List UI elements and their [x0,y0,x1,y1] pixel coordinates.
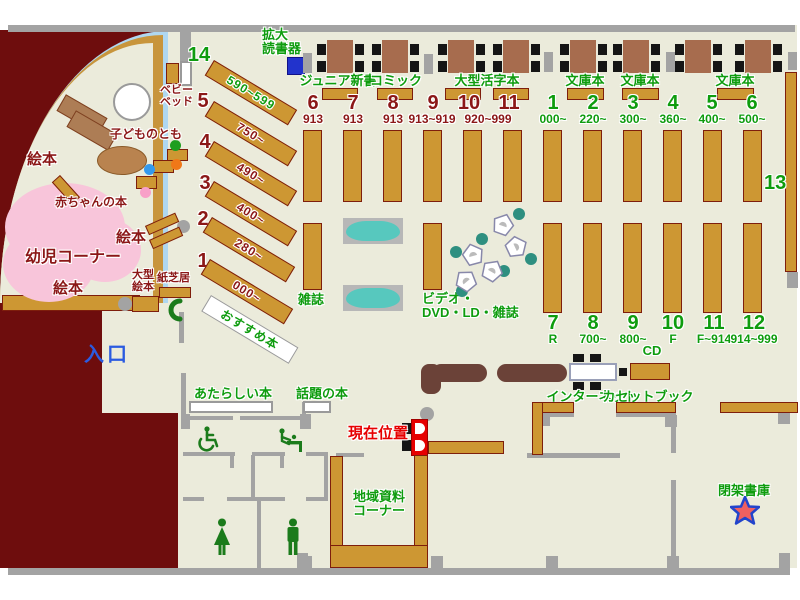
chair-icon [735,44,744,55]
chair-icon [317,61,326,72]
reading-table [570,40,596,73]
stool-green [170,140,181,151]
bookshelf [343,130,362,202]
chair-icon [619,368,627,376]
stool-orange [171,159,182,170]
internet-table [569,363,617,381]
stack-number: 3 [627,92,638,114]
label-ehon-bottom: 絵本 [53,281,83,298]
baby-change-icon [276,427,304,453]
round-table [113,83,151,121]
chair-icon [675,44,684,55]
large-ehon-shelf [132,296,159,312]
chair-icon [651,61,660,72]
chair-icon [560,44,569,55]
chair-icon [773,44,782,55]
pillar [181,414,190,429]
bookshelf [543,223,562,313]
stack-number: 12 [743,312,765,334]
stack-range: 913~919 [408,113,455,126]
bookshelf [503,130,522,202]
bookshelf [463,130,482,202]
stack-range: 000~ [539,113,566,126]
chair-icon [372,61,381,72]
chair-icon [476,61,485,72]
stack-number: 11 [498,92,519,114]
reading-table [503,40,529,73]
bookshelf [703,223,722,313]
chair-icon [355,44,364,55]
stack-number: 5 [706,92,717,114]
wall-service [671,427,676,453]
stack-range: 300~ [619,113,646,126]
kids-bench-oval [97,146,147,175]
chair-icon [735,61,744,72]
stack-range: 360~ [659,113,686,126]
chair-icon [410,44,419,55]
chair-icon [531,61,540,72]
wheelchair-icon [196,425,224,453]
stack-number: 7 [347,92,358,114]
stack-number: 6 [307,92,318,114]
chair-icon [713,61,722,72]
pillar [424,54,433,74]
stack-range: 800~ [619,333,646,346]
stack-range: 914~999 [730,333,777,346]
wall-toilet [230,452,234,468]
bookshelf [623,223,642,313]
stack-number: 10 [458,92,480,114]
bookshelf [532,402,543,455]
wall-toilet [257,500,261,568]
new-books-shelf [189,401,273,413]
chair-icon [493,44,502,55]
label-section: コミック [370,74,422,88]
chair-icon [355,61,364,72]
label-children-area: 幼児コーナー [25,249,121,267]
baby-bed-shelf [166,63,179,84]
counter [497,364,567,382]
stack-number: 5 [197,90,208,112]
stack-range: R [549,333,558,346]
pillar [667,556,679,568]
pillar [300,556,312,568]
closed-stacks-star-icon [730,496,760,525]
stack-number: 2 [587,92,598,114]
wall-toilet [240,416,302,420]
chair-icon [590,354,601,362]
chair-icon [675,61,684,72]
wall-toilet [324,452,328,498]
stack-range: F~914 [697,333,731,346]
label-entrance: 入口 [84,344,130,366]
chair-icon [613,61,622,72]
wall-right-stub-low [778,412,790,424]
bookshelf [583,130,602,202]
pillar [665,415,677,427]
stack-number: 11 [703,312,724,334]
stool-pink [140,187,151,198]
wall-top [8,25,795,32]
label-ehon-mid: 絵本 [116,230,146,247]
chair-icon [573,354,584,362]
label-topic-books: 話題の本 [296,387,348,401]
magazine-rack [346,288,400,308]
label-large-ehon: 大型絵本 [132,269,154,293]
stack-number: 7 [547,312,558,334]
label-section: ジュニア新書 [299,74,376,88]
stack-number: 10 [662,312,684,334]
stack-range: 400~ [698,113,725,126]
mens-toilet-icon [283,518,303,556]
stack-range: 220~ [579,113,606,126]
chair-icon [438,61,447,72]
pillar [544,52,553,72]
chair-icon [438,44,447,55]
pillar [431,556,443,568]
label-magnifier: 拡大読書器 [262,28,301,57]
chair-icon [531,44,540,55]
wall-service [671,480,676,568]
stack-range: 913 [343,113,363,126]
magazine-rack [346,221,400,241]
chair-icon [773,61,782,72]
label-regional-corner: 地域資料コーナー [353,490,405,519]
chair-icon [476,44,485,55]
wall-toilet [227,497,285,501]
chair-icon [493,61,502,72]
bookshelf-13 [785,72,797,272]
pillar [303,53,312,73]
chair-icon [613,44,622,55]
chair-icon [651,44,660,55]
chair-icon [598,44,607,55]
wall-toilet [183,416,233,420]
chair-icon [598,61,607,72]
wall-bottom [8,568,790,575]
bookshelf [583,223,602,313]
reading-table [382,40,408,73]
stool-blue [144,164,155,175]
pillar [546,556,558,568]
bookshelf [423,130,442,202]
bookshelf [743,223,762,313]
wall-right-stub-bottom [779,553,790,568]
wall-toilet [183,497,204,501]
bookshelf [616,402,676,413]
label-magazines: 雑誌 [298,293,324,307]
label-section: 文庫本 [565,74,604,88]
bookshelf [743,130,762,202]
wall-toilet [306,497,328,501]
bookshelf [428,441,504,454]
chair-icon [372,44,381,55]
stack-range: 920~999 [464,113,511,126]
stack-range: 913 [303,113,323,126]
reading-table [327,40,353,73]
chair-icon [713,44,722,55]
stack-number: 9 [427,92,438,114]
wall-right-stub-mid [787,272,798,288]
phone-icon [165,297,183,323]
pillar [666,52,675,72]
bookshelf [623,130,642,202]
wall-right-stub-top [788,52,797,70]
label-baby-books: 赤ちゃんの本 [55,196,127,209]
stack-number: 6 [746,92,757,114]
bookshelf [663,223,682,313]
listening-booths [448,203,544,303]
bookshelf [383,130,402,202]
label-kodomo-no-tomo: 子どものとも [110,128,182,141]
counter [432,364,487,382]
bookshelf [303,130,322,202]
label-ehon-left: 絵本 [27,152,57,169]
bookshelf [703,130,722,202]
stack-number: 1 [547,92,558,114]
reading-table [685,40,711,73]
stack-range: F [669,333,676,346]
topic-books-shelf [303,401,331,413]
label-baby-bed: ベビーベッド [160,84,193,108]
regional-shelf-bottom [330,545,428,568]
label-section: 文庫本 [620,74,659,88]
stack-number: 14 [188,44,210,66]
label-current-location: 現在位置 [348,426,408,443]
stack-range: 500~ [738,113,765,126]
reading-table [448,40,474,73]
bookshelf [423,223,442,290]
stack-range: 700~ [579,333,606,346]
outside-area-bottomleft [0,413,178,568]
stack-range: 913 [383,113,403,126]
chair-icon [317,44,326,55]
reading-table [745,40,771,73]
stack-number: 9 [627,312,638,334]
label-kamishibai: 紙芝居 [157,272,190,284]
label-stack-13: 13 [764,172,786,194]
wall-corridor-lower [181,373,186,420]
stack-number: 8 [387,92,398,114]
womens-toilet-icon [212,518,232,556]
chair-icon [410,61,419,72]
wall-toilet [251,455,255,498]
cd-shelf [630,363,670,380]
label-section: 文庫本 [715,74,754,88]
bookshelf [303,223,322,290]
wall-toilet [280,452,284,468]
bookshelf [663,130,682,202]
stack-number: 8 [587,312,598,334]
chair-icon [560,61,569,72]
library-floor-map: 絵本 赤ちゃんの本 幼児コーナー 絵本 絵本 子どものとも ベビーベッド 大型絵… [0,0,800,600]
bookshelf [720,402,798,413]
label-new-books: あたらしい本 [194,387,272,401]
reading-table [623,40,649,73]
stack-number: 4 [667,92,678,114]
bookshelf [543,130,562,202]
round-pillar [118,297,132,311]
label-section: 大型活字本 [454,74,519,88]
